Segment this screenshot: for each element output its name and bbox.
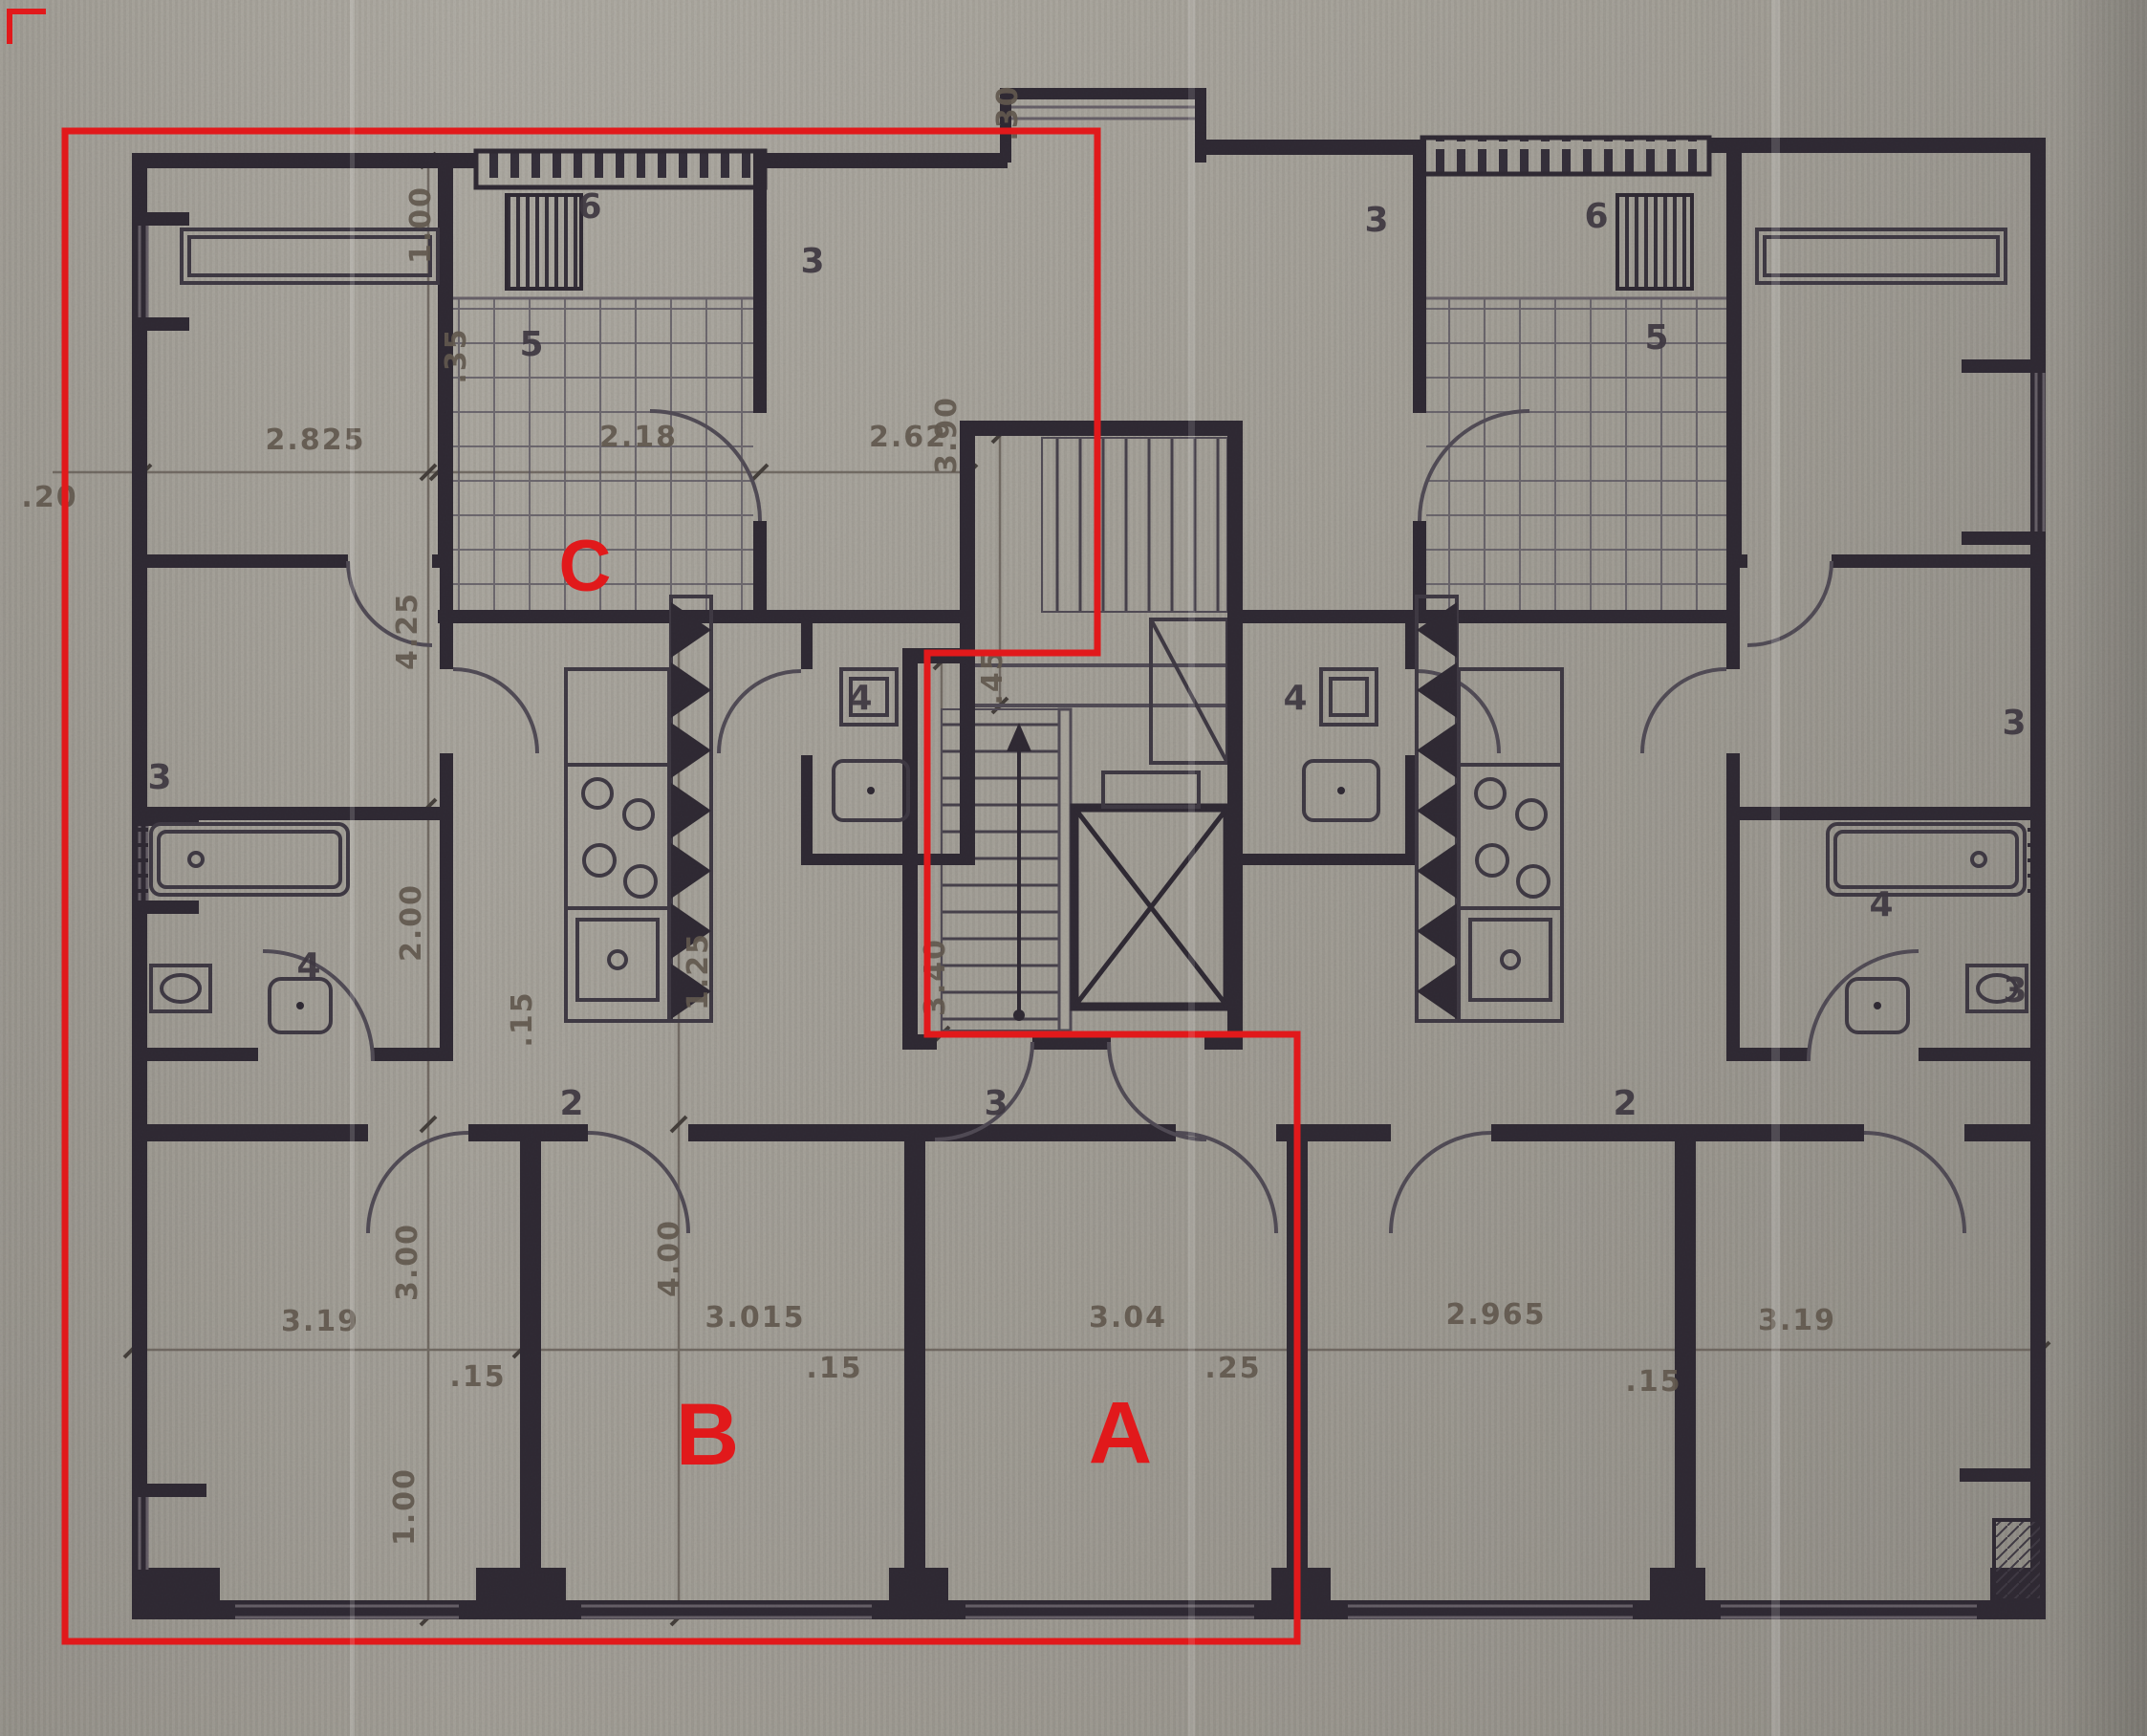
floor-plan-drawing: 2.8252.182.62.203.19.153.015.153.04.252.… <box>0 0 2147 1736</box>
page-edge-shadow <box>2055 0 2147 1736</box>
red-room-letter: B <box>676 1386 739 1484</box>
red-room-letter: C <box>559 526 612 607</box>
scanned-floor-plan: 2.8252.182.62.203.19.153.015.153.04.252.… <box>0 0 2147 1736</box>
red-room-letter: A <box>1089 1384 1152 1482</box>
paper-crease <box>350 0 355 1736</box>
paper-crease <box>1771 0 1780 1736</box>
paper-grain <box>0 0 2147 1736</box>
paper-crease <box>1188 0 1195 1736</box>
